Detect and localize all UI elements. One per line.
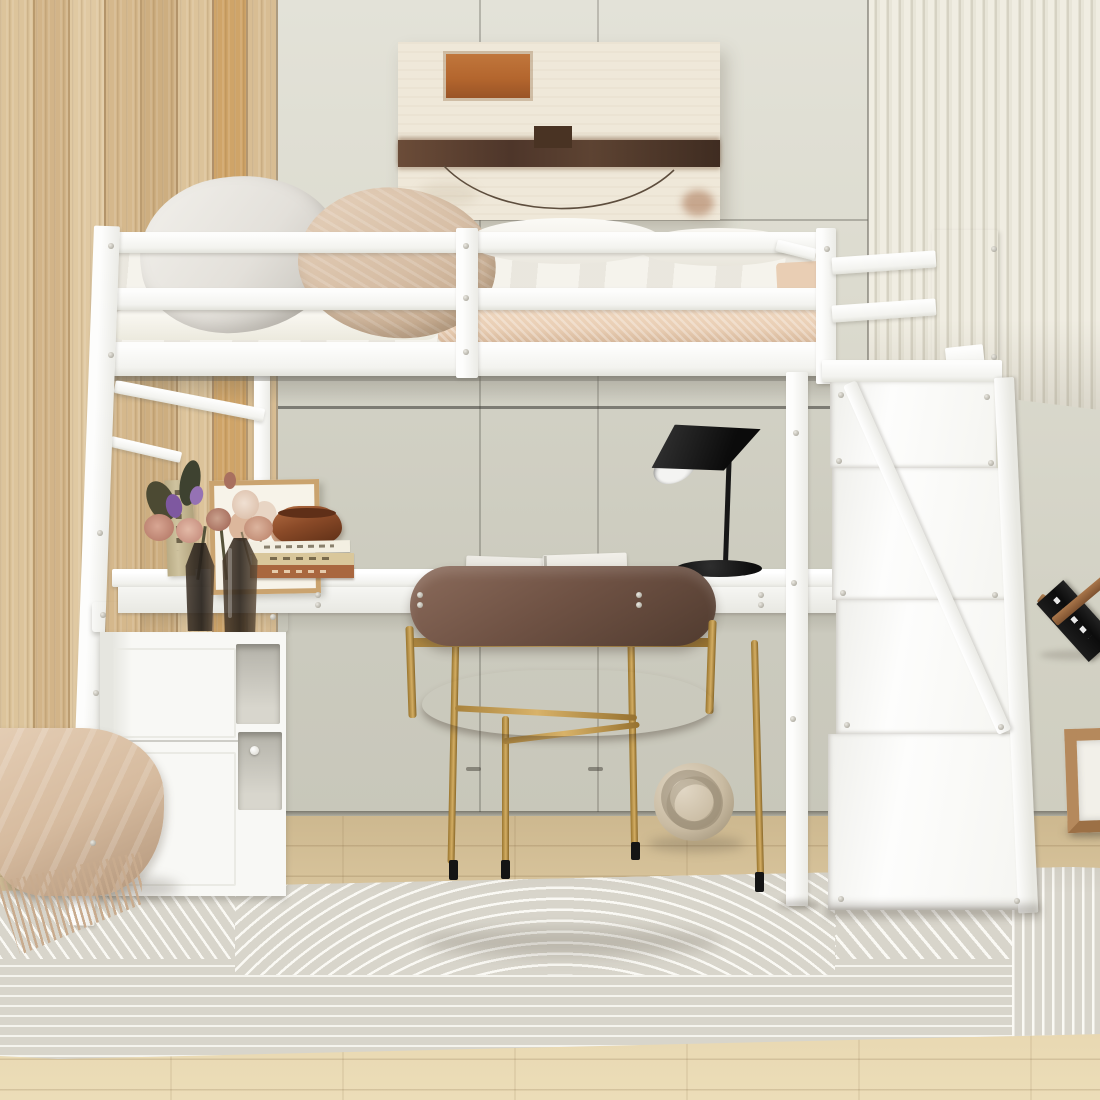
- screw: [108, 243, 114, 249]
- chair-foot-cap-1: [449, 860, 458, 880]
- vase-highlight: [228, 548, 232, 618]
- chair-foot-cap-4: [755, 872, 764, 892]
- screw: [992, 592, 998, 598]
- mattress-sheet: [438, 308, 820, 342]
- bud: [224, 472, 236, 489]
- screw: [758, 602, 764, 608]
- screw: [636, 592, 642, 598]
- screw: [108, 352, 114, 358]
- wooden-cube-frame: [1064, 727, 1100, 833]
- screw: [758, 592, 764, 598]
- screw: [270, 614, 276, 620]
- screw: [463, 295, 469, 301]
- abstract-painting: [398, 42, 720, 220]
- screw: [840, 590, 846, 596]
- chair-foot-cap-2: [501, 860, 510, 879]
- screw: [417, 592, 423, 598]
- screw: [1014, 898, 1020, 904]
- cabinet-knob: [250, 746, 259, 755]
- flower-bouquet: [138, 460, 313, 570]
- painting-rust-rectangle: [446, 54, 530, 98]
- stair-storage-box-4: [828, 734, 1030, 910]
- screw: [991, 354, 997, 360]
- rose-4: [244, 516, 273, 541]
- screw: [836, 458, 842, 464]
- screw: [417, 602, 423, 608]
- chair-seat-cushion: [422, 670, 714, 736]
- chair-foot-cap-3: [631, 842, 640, 860]
- screw: [90, 840, 96, 846]
- ribbed-panel-edge: [867, 0, 869, 382]
- cabinet-cubby-lower: [238, 732, 282, 810]
- rail-mid-bracket: [456, 228, 478, 378]
- painting-small-block: [534, 126, 572, 148]
- screw: [100, 612, 106, 618]
- screw: [991, 246, 997, 252]
- chair-floor-shadow: [420, 928, 720, 956]
- rose-1: [144, 514, 174, 541]
- screw: [791, 580, 797, 586]
- cabinet-cubby-upper: [236, 644, 280, 724]
- screw: [790, 716, 796, 722]
- screw: [838, 392, 844, 398]
- screw: [984, 394, 990, 400]
- pale-flower: [232, 490, 259, 519]
- rose-2: [176, 518, 203, 543]
- bed-front-right-leg: [786, 372, 808, 906]
- screw: [988, 460, 994, 466]
- screw: [463, 349, 469, 355]
- knot-floor-pillow: [654, 763, 734, 841]
- right-leg-floor-shadow: [778, 900, 820, 910]
- book-stack-bottom-text: [272, 570, 332, 573]
- screw: [93, 690, 99, 696]
- screw: [844, 722, 850, 728]
- painting-corner-smudge: [682, 190, 714, 216]
- screw: [998, 724, 1004, 730]
- screw: [636, 602, 642, 608]
- screw: [824, 246, 830, 252]
- stair-rug-shadow: [826, 904, 1040, 918]
- screw: [838, 896, 844, 902]
- screw: [97, 530, 103, 536]
- screw: [315, 592, 321, 598]
- chair-back-cushion: [410, 566, 716, 646]
- cabinet-panel-upper: [114, 648, 236, 738]
- rose-3: [206, 508, 231, 531]
- screw: [793, 430, 799, 436]
- screw: [463, 243, 469, 249]
- stair-top-trim: [822, 360, 1002, 382]
- screw: [315, 602, 321, 608]
- room-scene: Bright bedroom product photo: white loft…: [0, 0, 1100, 1100]
